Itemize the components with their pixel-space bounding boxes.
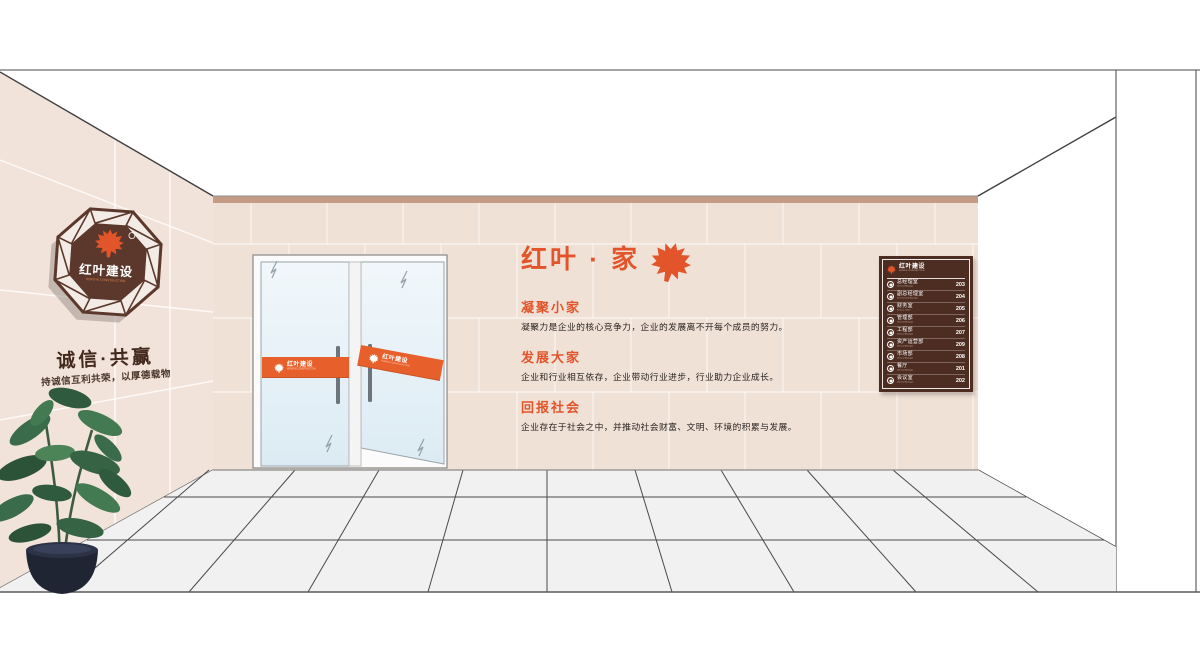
- section-body: 凝聚力是企业的核心竞争力，企业的发展离不开每个成员的努力。: [521, 320, 821, 333]
- logo-sign-text: 红叶建设 HONGYE CONSTRUCTION: [57, 258, 154, 288]
- directory-row: 管理部General Manager206: [887, 315, 965, 327]
- room-leaf-icon: [887, 353, 894, 360]
- section-heading: 发展大家: [521, 347, 821, 366]
- room-leaf-icon: [887, 317, 894, 324]
- wall-section-2: 发展大家 企业和行业相互依存，企业带动行业进步，行业助力企业成长。: [521, 347, 821, 383]
- room-label-en: General Manager: [897, 369, 920, 371]
- room-leaf-icon: [887, 365, 894, 372]
- room-leaf-icon: [887, 377, 894, 384]
- room-label-en: General Manager: [897, 321, 920, 323]
- board-leaf-icon: [887, 265, 896, 274]
- board-brand-en: HONGYE CONSTRUCTION: [899, 270, 924, 272]
- wall-section-1: 凝聚小家 凝聚力是企业的核心竞争力，企业的发展离不开每个成员的努力。: [521, 297, 821, 333]
- room-number: 205: [956, 306, 965, 312]
- feature-wall-block: 红叶 · 家 凝聚小家 凝聚力是企业的核心竞争力，企业的发展离不开每个成员的努力…: [521, 245, 821, 433]
- plant-leaves: [0, 384, 135, 547]
- directory-row: 餐厅General Manager201: [887, 363, 965, 375]
- directory-row: 市场部General Manager208: [887, 351, 965, 363]
- door-band-left: 红叶建设 HONGYE CONSTRUCTION: [262, 357, 349, 378]
- directory-board-header: 红叶建设 HONGYE CONSTRUCTION: [887, 262, 965, 279]
- room-number: 207: [956, 330, 965, 336]
- directory-row: 财务室Finance Office205: [887, 303, 965, 315]
- room-label: 餐厅General Manager: [897, 364, 953, 374]
- directory-row: 总经理室General Manager203: [887, 279, 965, 291]
- room-label-en: Vice General Manager: [897, 297, 920, 299]
- potted-plant: [0, 368, 160, 613]
- room-label-en: General Manager: [897, 357, 920, 359]
- room-number: 206: [956, 318, 965, 324]
- room-label: 管理部General Manager: [897, 316, 953, 326]
- band-leaf-icon: [274, 363, 284, 373]
- directory-row: 副总经理室Vice General Manager204: [887, 291, 965, 303]
- interior-scene: 红叶建设 HONGYE CONSTRUCTION 诚信·共赢 持诚信互利共荣，以…: [0, 0, 1200, 663]
- room-label: 副总经理室Vice General Manager: [897, 292, 953, 302]
- sign-brand-cn: 红叶建设: [58, 258, 155, 282]
- band-brand-en: HONGYE CONSTRUCTION: [287, 368, 316, 370]
- room-number: 203: [956, 282, 965, 288]
- band-leaf-icon: [368, 352, 380, 364]
- room-label: 会议室General Manager: [897, 376, 953, 386]
- room-leaf-icon: [887, 341, 894, 348]
- directory-row: 资产运营部General Manager209: [887, 339, 965, 351]
- room-label-en: General Manager: [897, 345, 920, 347]
- room-number: 208: [956, 354, 965, 360]
- directory-row: 会议室General Manager202: [887, 375, 965, 386]
- room-leaf-icon: [887, 305, 894, 312]
- directory-row: 工程部General Manager207: [887, 327, 965, 339]
- room-number: 204: [956, 294, 965, 300]
- section-body: 企业存在于社会之中，并推动社会财富、文明、环境的积累与发展。: [521, 420, 821, 433]
- room-label-en: Finance Office: [897, 309, 920, 311]
- room-label: 市场部General Manager: [897, 352, 953, 362]
- room-number: 201: [956, 366, 965, 372]
- plant-pot: [26, 542, 98, 594]
- room-number: 202: [956, 378, 965, 384]
- room-label-en: General Manager: [897, 333, 920, 335]
- room-leaf-icon: [887, 281, 894, 288]
- floor: [0, 470, 1200, 592]
- room-number: 209: [956, 342, 965, 348]
- section-heading: 凝聚小家: [521, 297, 821, 316]
- room-leaf-icon: [887, 329, 894, 336]
- room-label: 总经理室General Manager: [897, 280, 953, 290]
- feature-wall-title: 红叶 · 家: [521, 245, 640, 274]
- room-leaf-icon: [887, 293, 894, 300]
- room-label: 财务室Finance Office: [897, 304, 953, 314]
- directory-board: 红叶建设 HONGYE CONSTRUCTION 总经理室General Man…: [879, 256, 973, 392]
- room-label-en: General Manager: [897, 285, 920, 287]
- feature-wall-leaf-icon: [646, 237, 697, 288]
- directory-rows: 总经理室General Manager203副总经理室Vice General …: [887, 279, 965, 386]
- room-label-en: General Manager: [897, 381, 920, 383]
- room-label: 工程部General Manager: [897, 328, 953, 338]
- room-label: 资产运营部General Manager: [897, 340, 953, 350]
- section-heading: 回报社会: [521, 397, 821, 416]
- section-body: 企业和行业相互依存，企业带动行业进步，行业助力企业成长。: [521, 370, 821, 383]
- wall-section-3: 回报社会 企业存在于社会之中，并推动社会财富、文明、环境的积累与发展。: [521, 397, 821, 433]
